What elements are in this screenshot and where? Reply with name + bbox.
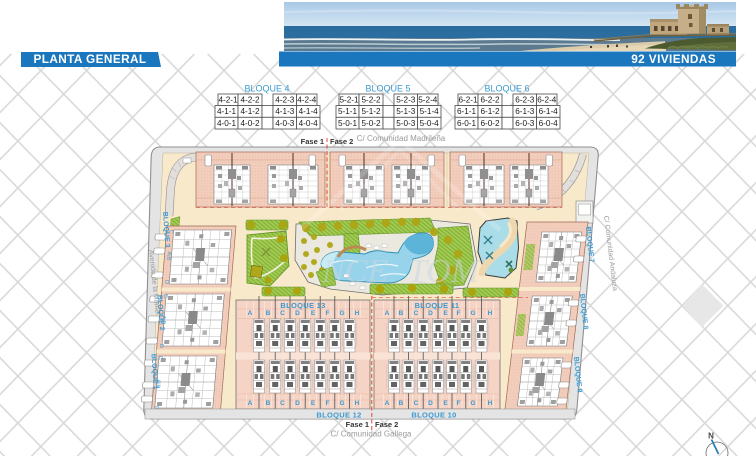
svg-text:5-0-1: 5-0-1 bbox=[338, 119, 358, 128]
svg-text:E: E bbox=[311, 400, 316, 407]
svg-text:D: D bbox=[428, 400, 433, 407]
svg-text:D: D bbox=[163, 280, 169, 284]
svg-text:F: F bbox=[457, 400, 461, 407]
svg-text:5-1-4: 5-1-4 bbox=[420, 107, 440, 116]
svg-text:D: D bbox=[428, 310, 433, 317]
svg-text:Fase 2: Fase 2 bbox=[375, 420, 398, 429]
svg-text:H: H bbox=[355, 400, 360, 407]
svg-text:H: H bbox=[355, 310, 360, 317]
svg-text:BLOQUE 4: BLOQUE 4 bbox=[244, 84, 289, 94]
svg-text:6-2-4: 6-2-4 bbox=[537, 95, 557, 104]
svg-text:F: F bbox=[457, 310, 461, 317]
svg-text:6-2-2: 6-2-2 bbox=[480, 95, 500, 104]
svg-text:G: G bbox=[470, 400, 475, 407]
svg-text:5-1-2: 5-1-2 bbox=[361, 107, 381, 116]
svg-text:B: B bbox=[399, 310, 404, 317]
svg-text:4-2-3: 4-2-3 bbox=[275, 95, 295, 104]
svg-text:5-1-1: 5-1-1 bbox=[338, 107, 358, 116]
svg-text:6-1-1: 6-1-1 bbox=[457, 107, 477, 116]
svg-text:E: E bbox=[443, 310, 448, 317]
svg-text:Fase 2: Fase 2 bbox=[330, 137, 353, 146]
svg-text:B: B bbox=[266, 310, 271, 317]
svg-text:4-1-3: 4-1-3 bbox=[275, 107, 295, 116]
svg-text:A: A bbox=[248, 400, 253, 407]
svg-text:5-0-2: 5-0-2 bbox=[361, 119, 381, 128]
svg-text:4-2-1: 4-2-1 bbox=[218, 95, 238, 104]
svg-text:BLOQUE 5: BLOQUE 5 bbox=[365, 84, 410, 94]
svg-text:F: F bbox=[326, 400, 330, 407]
svg-text:4-1-2: 4-1-2 bbox=[240, 107, 260, 116]
svg-text:A: A bbox=[385, 400, 390, 407]
svg-text:C/ Comunidad Madrileña: C/ Comunidad Madrileña bbox=[357, 134, 446, 143]
svg-text:G: G bbox=[470, 310, 475, 317]
svg-text:92 VIVIENDAS: 92 VIVIENDAS bbox=[631, 52, 716, 66]
svg-text:6-1-3: 6-1-3 bbox=[515, 107, 535, 116]
svg-text:4-0-2: 4-0-2 bbox=[240, 119, 260, 128]
svg-text:B: B bbox=[266, 400, 271, 407]
svg-text:5-0-3: 5-0-3 bbox=[396, 119, 416, 128]
svg-text:C: C bbox=[280, 400, 285, 407]
svg-text:5-1-3: 5-1-3 bbox=[396, 107, 416, 116]
svg-text:G: G bbox=[339, 310, 344, 317]
svg-text:C: C bbox=[414, 400, 419, 407]
svg-text:E: E bbox=[443, 400, 448, 407]
svg-text:D: D bbox=[295, 310, 300, 317]
svg-text:A: A bbox=[248, 310, 253, 317]
svg-text:5-2-4: 5-2-4 bbox=[418, 95, 438, 104]
svg-text:BLOQUE 13: BLOQUE 13 bbox=[280, 301, 325, 310]
svg-text:PLANTA GENERAL: PLANTA GENERAL bbox=[33, 52, 146, 66]
svg-text:4-2-4: 4-2-4 bbox=[297, 95, 317, 104]
svg-text:A: A bbox=[385, 310, 390, 317]
svg-text:BLOQUE 12: BLOQUE 12 bbox=[316, 411, 361, 420]
svg-text:4-0-4: 4-0-4 bbox=[299, 119, 319, 128]
svg-text:C: C bbox=[280, 310, 285, 317]
svg-text:E: E bbox=[311, 310, 316, 317]
svg-text:D: D bbox=[158, 344, 164, 348]
svg-text:H: H bbox=[488, 310, 493, 317]
svg-text:C: C bbox=[414, 310, 419, 317]
svg-text:6-0-2: 6-0-2 bbox=[480, 119, 500, 128]
svg-text:F: F bbox=[326, 310, 330, 317]
svg-text:6-1-2: 6-1-2 bbox=[480, 107, 500, 116]
svg-text:BLOQUE 10: BLOQUE 10 bbox=[411, 411, 456, 420]
svg-text:4-2-2: 4-2-2 bbox=[240, 95, 260, 104]
svg-text:6-2-1: 6-2-1 bbox=[458, 95, 478, 104]
svg-text:BLOQUE 6: BLOQUE 6 bbox=[484, 84, 529, 94]
svg-text:D: D bbox=[295, 400, 300, 407]
svg-text:G: G bbox=[339, 400, 344, 407]
svg-text:NCE: NCE bbox=[321, 253, 388, 290]
svg-text:Fase 1: Fase 1 bbox=[346, 420, 369, 429]
svg-text:5-2-3: 5-2-3 bbox=[396, 95, 416, 104]
svg-text:C/ Comunidad Gallega: C/ Comunidad Gallega bbox=[331, 430, 412, 439]
svg-text:6-0-3: 6-0-3 bbox=[515, 119, 535, 128]
svg-text:4-1-4: 4-1-4 bbox=[299, 107, 319, 116]
svg-text:5-0-4: 5-0-4 bbox=[420, 119, 440, 128]
svg-text:6-0-1: 6-0-1 bbox=[457, 119, 477, 128]
svg-text:4-1-1: 4-1-1 bbox=[217, 107, 237, 116]
svg-text:5-2-1: 5-2-1 bbox=[339, 95, 359, 104]
svg-text:H: H bbox=[488, 400, 493, 407]
svg-text:5-2-2: 5-2-2 bbox=[361, 95, 381, 104]
svg-text:6-1-4: 6-1-4 bbox=[539, 107, 559, 116]
svg-text:BLOQUE 11: BLOQUE 11 bbox=[415, 301, 460, 310]
svg-text:B: B bbox=[399, 400, 404, 407]
svg-text:4-0-3: 4-0-3 bbox=[275, 119, 295, 128]
svg-text:N: N bbox=[708, 432, 714, 441]
svg-text:TOM: TOM bbox=[408, 253, 481, 290]
svg-text:A|B: A|B bbox=[165, 252, 172, 261]
svg-text:Fase 1: Fase 1 bbox=[301, 137, 324, 146]
svg-text:6-0-4: 6-0-4 bbox=[539, 119, 559, 128]
svg-text:4-0-1: 4-0-1 bbox=[217, 119, 237, 128]
svg-text:6-2-3: 6-2-3 bbox=[515, 95, 535, 104]
